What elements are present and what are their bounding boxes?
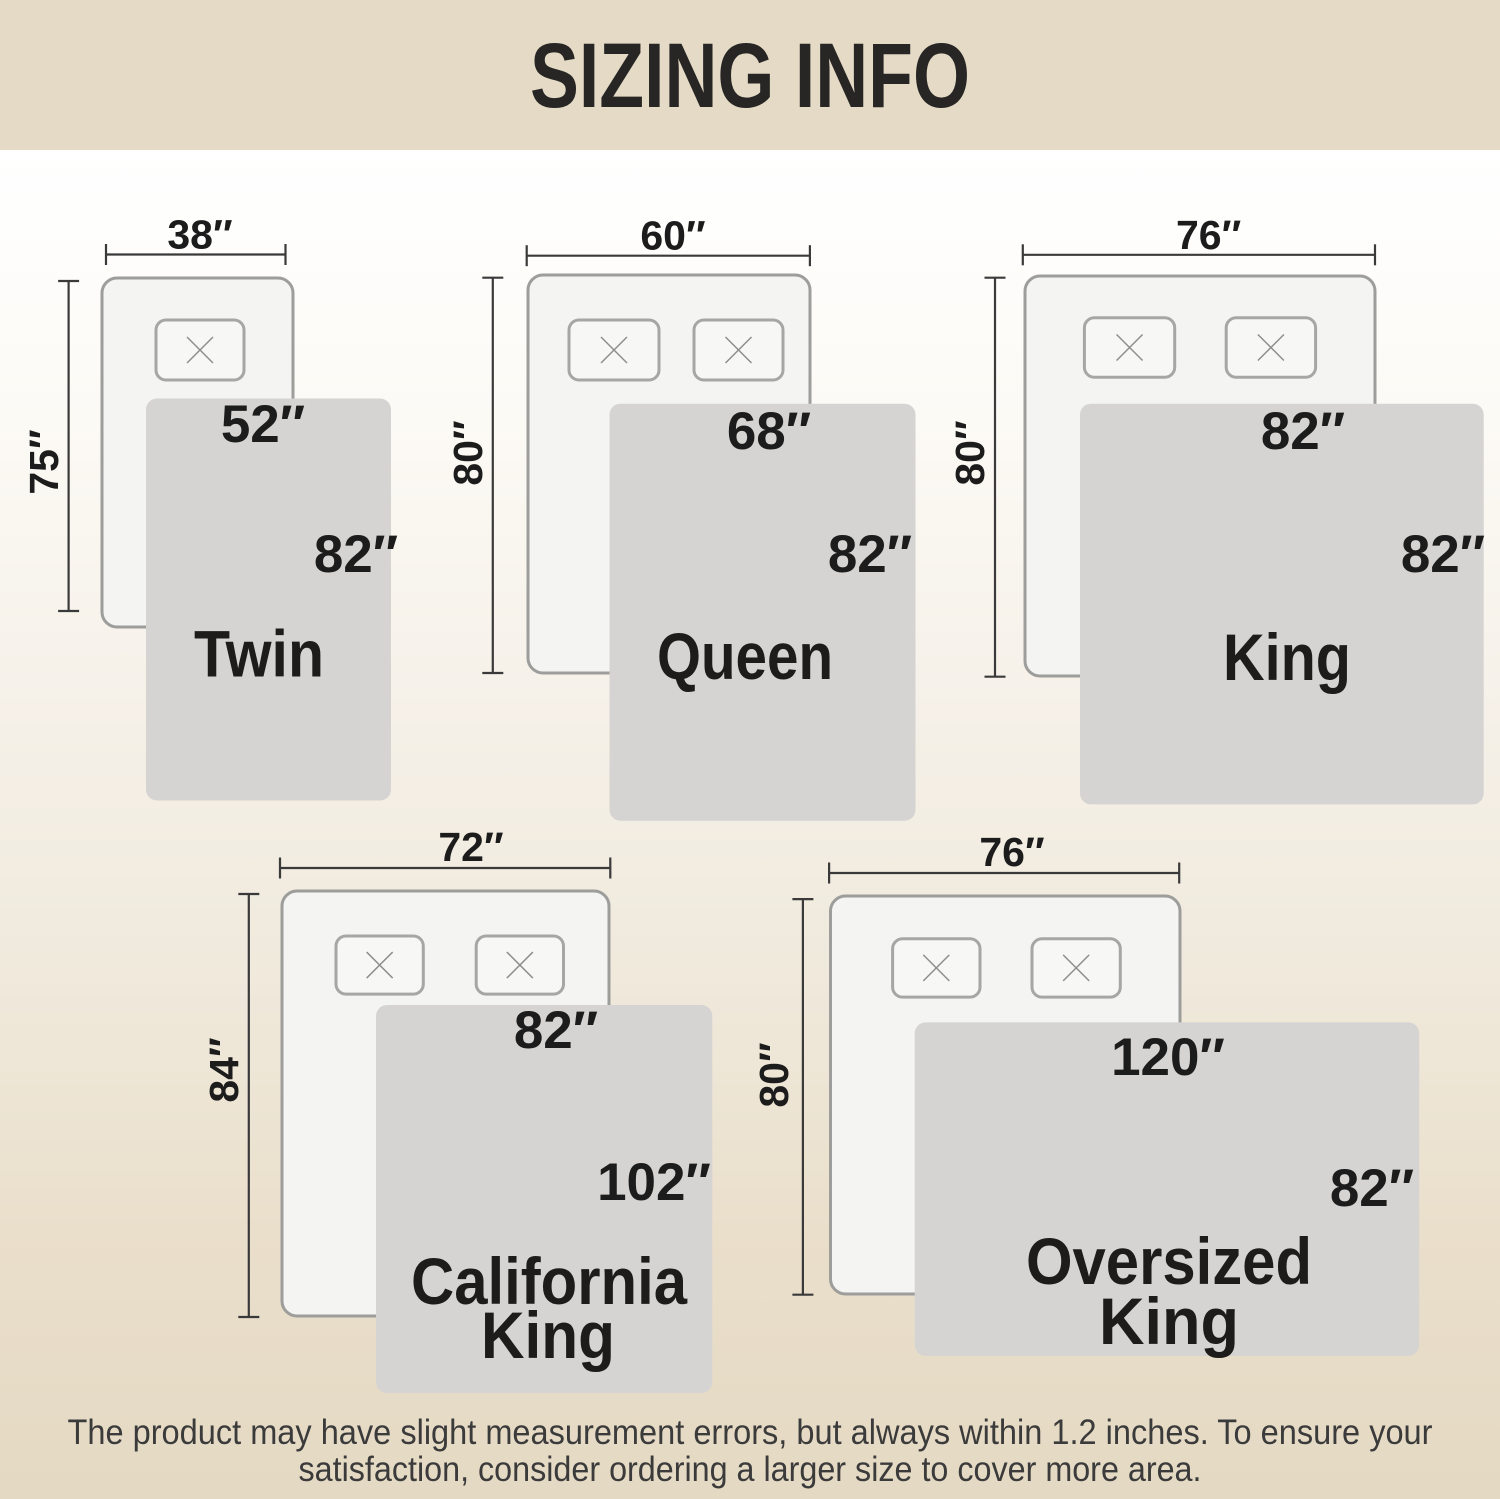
svg-text:84″: 84″ bbox=[201, 1037, 247, 1102]
svg-text:82″: 82″ bbox=[314, 525, 398, 584]
svg-text:The product may have slight me: The product may have slight measurement … bbox=[68, 1413, 1433, 1452]
svg-text:82″: 82″ bbox=[514, 1001, 598, 1060]
svg-text:52″: 52″ bbox=[221, 395, 305, 454]
svg-text:80″: 80″ bbox=[947, 420, 993, 485]
svg-text:82″: 82″ bbox=[828, 525, 912, 584]
svg-text:68″: 68″ bbox=[727, 402, 811, 461]
svg-text:75″: 75″ bbox=[21, 429, 67, 494]
svg-text:38″: 38″ bbox=[167, 212, 232, 258]
svg-text:82″: 82″ bbox=[1330, 1159, 1414, 1218]
svg-text:80″: 80″ bbox=[445, 420, 491, 485]
svg-text:60″: 60″ bbox=[640, 213, 705, 259]
svg-text:Queen: Queen bbox=[657, 619, 833, 693]
svg-text:120″: 120″ bbox=[1111, 1028, 1225, 1087]
svg-text:102″: 102″ bbox=[597, 1153, 711, 1212]
svg-text:72″: 72″ bbox=[438, 824, 503, 870]
svg-text:80″: 80″ bbox=[751, 1042, 797, 1107]
svg-text:SIZING INFO: SIZING INFO bbox=[530, 25, 970, 127]
svg-text:King: King bbox=[1223, 620, 1351, 694]
svg-text:Twin: Twin bbox=[194, 617, 324, 691]
svg-text:King: King bbox=[481, 1298, 615, 1372]
svg-text:76″: 76″ bbox=[1176, 212, 1241, 258]
svg-text:King: King bbox=[1099, 1284, 1239, 1358]
svg-text:82″: 82″ bbox=[1401, 525, 1485, 584]
svg-text:satisfaction, consider orderin: satisfaction, consider ordering a larger… bbox=[299, 1450, 1202, 1489]
svg-text:76″: 76″ bbox=[979, 829, 1044, 875]
svg-text:82″: 82″ bbox=[1261, 402, 1345, 461]
